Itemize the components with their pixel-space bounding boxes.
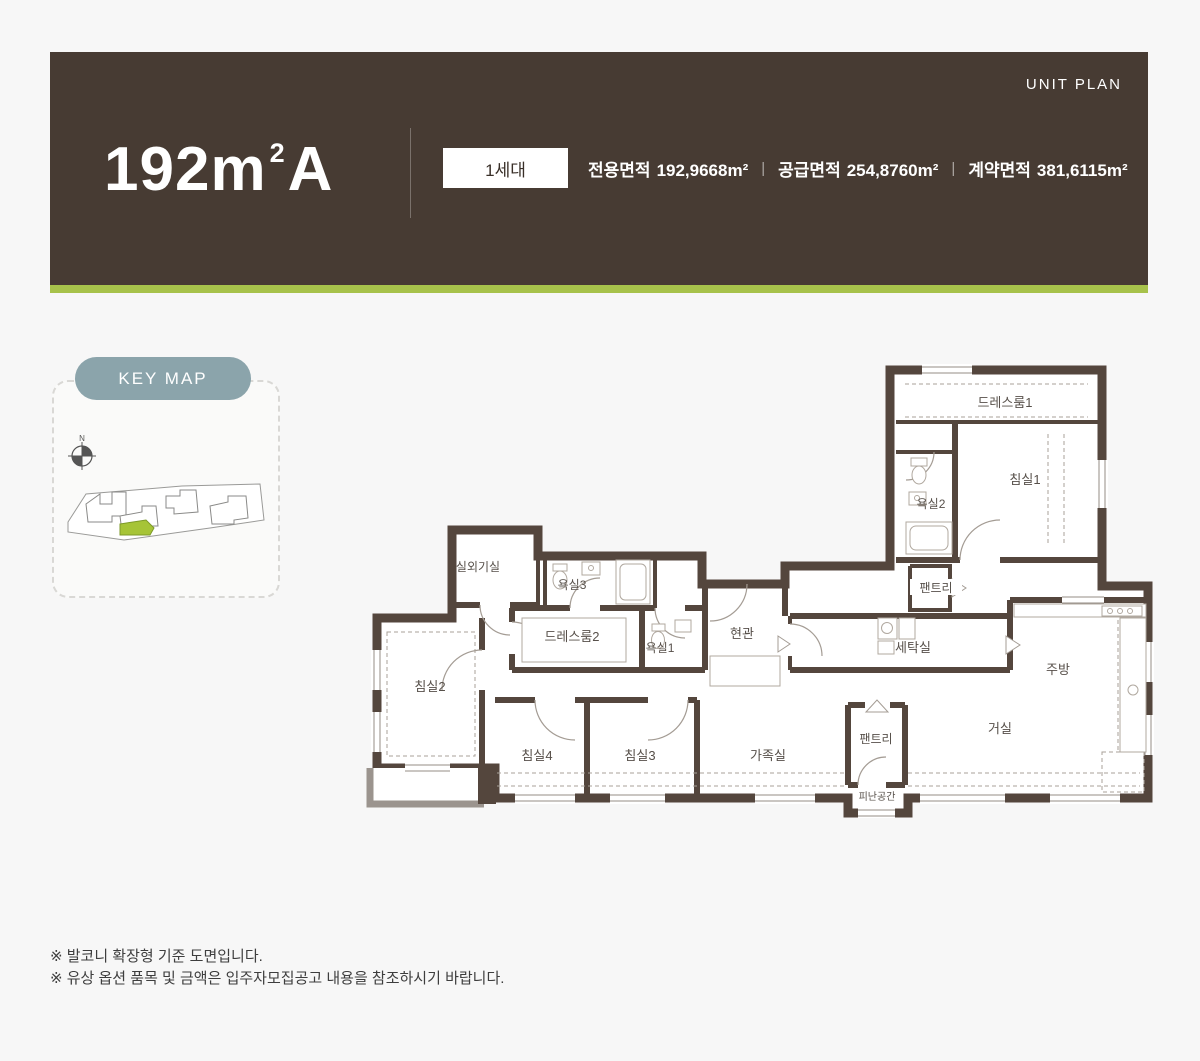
area-label: 공급면적 — [778, 161, 841, 180]
room-label-bedroom4: 침실4 — [521, 748, 552, 763]
area-item-supply: 공급면적254,8760m² — [778, 156, 938, 181]
note-line-1: ※ 발코니 확장형 기준 도면입니다. — [50, 946, 504, 968]
area-label: 계약면적 — [968, 161, 1031, 180]
room-label-family: 가족실 — [750, 748, 786, 763]
area-value: 192,9668m² — [657, 161, 749, 180]
room-label-laundry: 세탁실 — [895, 640, 931, 655]
area-value: 254,8760m² — [847, 161, 939, 180]
unit-title: 192m2A — [104, 134, 333, 205]
floorplan: 드레스룸1 침실1 욕실2 팬트리 세탁실 주방 현관 욕실1 드레스룸2 욕실… — [360, 360, 1160, 818]
area-item-exclusive: 전용면적192,9668m² — [588, 156, 748, 181]
room-label-pantry-lower: 팬트리 — [859, 732, 892, 746]
area-separator: | — [951, 160, 955, 177]
header-accent-bar — [50, 285, 1148, 293]
unit-title-main: 192m — [104, 135, 267, 204]
room-label-bath3: 욕실3 — [558, 578, 587, 592]
unit-title-sup: 2 — [270, 138, 286, 168]
room-label-dressroom1: 드레스룸1 — [977, 395, 1032, 410]
note-line-2: ※ 유상 옵션 품목 및 금액은 입주자모집공고 내용을 참조하시기 바랍니다. — [50, 968, 504, 990]
unit-plan-page: UNIT PLAN 192m2A 1세대 전용면적192,9668m² | 공급… — [0, 0, 1200, 1061]
keymap-site-map: N — [60, 430, 270, 580]
room-label-living: 거실 — [988, 721, 1012, 736]
area-value: 381,6115m² — [1037, 161, 1128, 180]
room-label-bath1: 욕실1 — [646, 641, 675, 655]
footnotes: ※ 발코니 확장형 기준 도면입니다. ※ 유상 옵션 품목 및 금액은 입주자… — [50, 946, 504, 990]
unit-plan-label: UNIT PLAN — [1026, 76, 1122, 93]
compass-icon: N — [68, 434, 96, 470]
area-item-contract: 계약면적381,6115m² — [968, 156, 1127, 181]
title-divider — [410, 128, 411, 218]
room-label-outdoor-unit: 실외기실 — [456, 560, 500, 574]
room-label-bedroom1: 침실1 — [1009, 472, 1040, 487]
unit-info-row: 1세대 전용면적192,9668m² | 공급면적254,8760m² | 계약… — [443, 148, 1128, 188]
room-label-bath2: 욕실2 — [917, 497, 946, 511]
area-label: 전용면적 — [588, 161, 651, 180]
room-label-bedroom3: 침실3 — [624, 748, 655, 763]
keymap-badge: KEY MAP — [75, 357, 251, 400]
room-label-pantry-upper: 팬트리 — [919, 581, 952, 595]
room-label-bedroom2: 침실2 — [414, 679, 445, 694]
room-label-kitchen: 주방 — [1046, 662, 1070, 677]
compass-north-label: N — [79, 434, 85, 443]
unit-title-suffix: A — [288, 135, 334, 204]
room-label-dressroom2: 드레스룸2 — [544, 629, 599, 644]
room-label-entry: 현관 — [730, 626, 754, 641]
unit-outline — [377, 370, 1148, 813]
room-label-refuge: 피난공간 — [859, 791, 896, 803]
area-separator: | — [761, 160, 765, 177]
household-count-badge: 1세대 — [443, 148, 568, 188]
site-plan — [68, 484, 264, 540]
header-banner: UNIT PLAN 192m2A 1세대 전용면적192,9668m² | 공급… — [50, 52, 1148, 285]
